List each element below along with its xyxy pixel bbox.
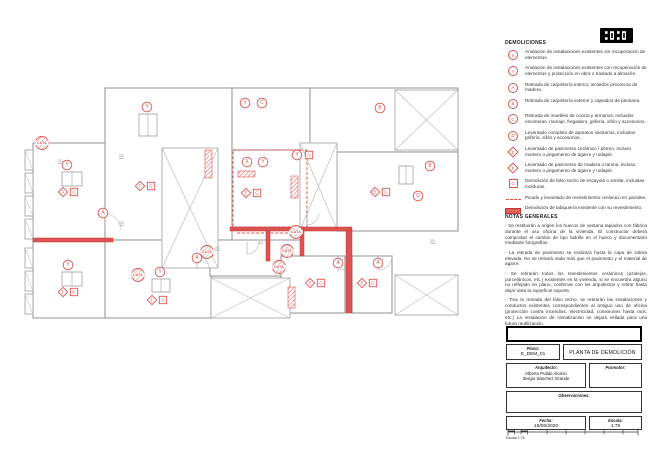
symbol-circle-letter: D	[416, 193, 420, 199]
diamond-icon: F	[507, 162, 518, 173]
hatched-wall-fill	[205, 150, 212, 178]
general-notes: NOTAS GENERALES - Se restituirán a orige…	[505, 214, 647, 330]
notes-title: NOTAS GENERALES	[505, 214, 647, 220]
plano-value: E_DEM_01	[521, 352, 546, 357]
legend-item-text: Anulación de instalaciones existentes co…	[525, 65, 647, 77]
legend-item: DLevantado completo de aparatos sanitari…	[505, 130, 647, 142]
legend-item: GDemolición de falso techo de escayola o…	[505, 178, 647, 190]
legend-symbol-circle-X: X	[505, 49, 521, 60]
circle-icon: X	[508, 50, 518, 60]
legend-item: XAnulación de instalaciones existentes s…	[505, 49, 647, 61]
note-paragraph: - Se retirarán todos los revestimientos …	[505, 271, 647, 294]
observations-label: Observaciones:	[558, 393, 589, 398]
legend-item-text: Demolición de tabiquería existente con s…	[525, 205, 643, 211]
scale-bar-caption: Escala 1:75	[506, 436, 525, 440]
title-block: Plano: E_DEM_01 PLANTA DE DEMOLICIÓN Arq…	[505, 324, 647, 444]
symbol-square-letter: G	[371, 281, 375, 286]
room-outline	[337, 152, 458, 231]
legend-item: ARetirada de carpintería interior, inclu…	[505, 82, 647, 94]
symbol-square-letter: G	[149, 184, 153, 189]
demolition-wall	[266, 231, 270, 261]
circle-icon: A	[508, 83, 518, 93]
promoter-label: Promotor:	[605, 365, 625, 370]
legend-item-text: Anulación de instalaciones existentes si…	[525, 49, 647, 61]
dashed-line-icon	[506, 199, 521, 200]
legend-item: BRetirada de carpintería exterior y caje…	[505, 98, 647, 109]
note-paragraph: - La retirada de pavimento se realizará …	[505, 250, 647, 267]
solid-wall-icon	[505, 208, 521, 214]
plano-label: Plano:	[527, 346, 540, 351]
circle-icon: D	[508, 131, 518, 141]
legend-item: Demolición de tabiquería existente con s…	[505, 205, 647, 214]
circle-icon: B	[508, 99, 518, 109]
drawing-sheet: { "logo": {"name": "studio-logo"}, "lege…	[0, 0, 649, 459]
architect-label: Arquitecto:	[535, 365, 557, 370]
legend-symbol-circle-A: A	[505, 82, 521, 93]
drawing-title: PLANTA DE DEMOLICIÓN	[569, 350, 635, 356]
plano-cell: Plano: E_DEM_01	[506, 344, 560, 360]
symbol-square-letter: G	[72, 290, 76, 295]
legend-item: ELevantado de pavimento cerámico / pétre…	[505, 146, 647, 158]
diamond-icon: E	[507, 146, 518, 157]
demolitions-legend: DEMOLICIONES XAnulación de instalaciones…	[505, 40, 647, 218]
symbol-square-letter: G	[72, 190, 76, 195]
architect-cell: Arquitecto: Alberto Pulido Alonso Sergio…	[506, 363, 586, 388]
notes-body: - Se restituirán a origen los huecos de …	[505, 223, 647, 327]
legend-item-text: Picado y levantado de revestimiento cerá…	[525, 195, 647, 201]
symbol-square-letter: G	[255, 191, 259, 196]
legend-symbol-diamond-F: F	[505, 162, 521, 172]
square-icon: G	[509, 179, 518, 188]
symbol-diamond-letter: F	[62, 290, 65, 295]
symbol-diamond-letter: F	[139, 184, 142, 189]
circle-icon: Y	[508, 66, 518, 76]
cata-label: CATA	[37, 141, 47, 145]
legend-item-text: Levantado completo de aparatos sanitario…	[525, 130, 647, 142]
date-label: Fecha:	[539, 418, 553, 423]
legend-item-text: Levantado de pavimento de madera o tarim…	[525, 162, 647, 174]
room-outline	[33, 240, 105, 318]
symbol-square-letter: G	[307, 153, 311, 158]
observations-cell: Observaciones:	[506, 391, 642, 413]
legend-symbol-solid-wall	[505, 205, 521, 214]
legend-item-text: Demolición de falso techo de escayola o …	[525, 178, 647, 190]
cata-label: CATA	[282, 249, 292, 253]
legend-item-text: Retirada de carpintería interior, inclui…	[525, 82, 647, 94]
legend-item: YAnulación de instalaciones existentes c…	[505, 65, 647, 77]
symbol-diamond-letter: E	[309, 281, 312, 286]
symbol-diamond-letter: F	[62, 190, 65, 195]
legend-item: Picado y levantado de revestimiento cerá…	[505, 195, 647, 201]
stamp-box	[506, 326, 642, 342]
cata-label: CATA	[274, 265, 284, 269]
floor-plan-svg: YYYYAAAAXYYCYBBDGFGFGFGFGEGEGEGEGCATACAT…	[0, 0, 505, 459]
legend-title: DEMOLICIONES	[505, 40, 647, 46]
hatched-wall-fill	[288, 287, 295, 308]
demolition-wall	[346, 231, 352, 313]
legend-item-text: Retirada de carpintería exterior y cajea…	[525, 98, 640, 104]
symbol-diamond-letter: E	[361, 281, 364, 286]
room-outline	[232, 88, 310, 150]
legend-item: FLevantado de pavimento de madera o tari…	[505, 162, 647, 174]
legend-symbol-circle-C: C	[505, 113, 521, 124]
hatched-wall-fill	[291, 176, 298, 198]
legend-item-text: Levantado de pavimento cerámico / pétreo…	[525, 146, 647, 158]
demolition-wall	[33, 238, 113, 242]
cata-label: CATA	[291, 230, 301, 234]
legend-symbol-circle-B: B	[505, 98, 521, 109]
legend-symbol-circle-Y: Y	[505, 65, 521, 76]
symbol-diamond-letter: F	[151, 298, 154, 303]
hatched-wall-fill	[238, 171, 255, 177]
cata-label: CATA	[133, 273, 143, 277]
legend-symbol-circle-D: D	[505, 130, 521, 141]
symbol-square-letter: G	[384, 190, 388, 195]
drawing-title-cell: PLANTA DE DEMOLICIÓN	[563, 344, 642, 360]
promoter-cell: Promotor:	[589, 363, 642, 388]
symbol-diamond-letter: E	[245, 191, 248, 196]
symbol-square-letter: G	[161, 298, 165, 303]
scale-label: Escala:	[608, 418, 623, 423]
legend-items: XAnulación de instalaciones existentes s…	[505, 49, 647, 214]
symbol-square-letter: G	[319, 281, 323, 286]
scale-bar	[506, 427, 642, 436]
symbol-circle-letter: C	[260, 100, 264, 106]
legend-item: CRetirada de muebles de cocina y armario…	[505, 113, 647, 125]
note-paragraph: - Tras la retirada del falso techo, se r…	[505, 297, 647, 326]
note-paragraph: - Se restituirán a origen los huecos de …	[505, 223, 647, 246]
legend-symbol-square-G: G	[505, 178, 521, 188]
room-outline	[33, 143, 105, 240]
legend-item-text: Retirada de muebles de cocina y armarios…	[525, 113, 647, 125]
circle-icon: C	[508, 114, 518, 124]
architect-name-2: Sergio Sánchez Grande	[523, 376, 570, 381]
cata-label: CATA	[202, 250, 212, 254]
legend-symbol-dashed-line	[505, 195, 521, 201]
symbol-diamond-letter: E	[374, 190, 377, 195]
legend-symbol-diamond-E: E	[505, 146, 521, 156]
